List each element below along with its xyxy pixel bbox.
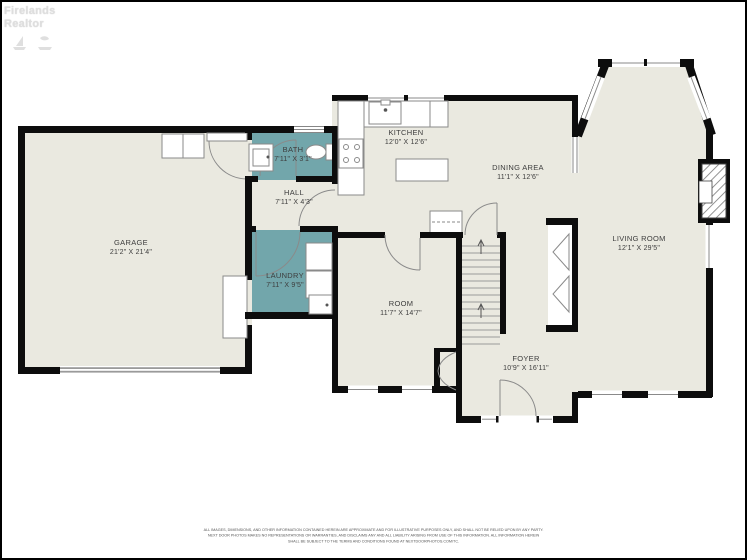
room-dims: 7'11" X 4'3" <box>275 198 313 208</box>
watermark: Firelands Realtor <box>4 5 56 56</box>
room-name: LAUNDRY <box>266 271 304 281</box>
kitchen-island <box>396 159 448 181</box>
watermark-line1: Firelands <box>4 5 56 18</box>
room-label-foyer: FOYER 10'9" X 16'11" <box>503 354 549 374</box>
room-label-garage: GARAGE 21'2" X 21'4" <box>110 238 152 258</box>
garage-appliance <box>183 134 204 158</box>
room-name: ROOM <box>380 299 422 309</box>
dryer <box>306 271 332 298</box>
room-dims: 7'11" X 3'1" <box>274 155 312 165</box>
room-name: LIVING ROOM <box>612 234 665 244</box>
garage-step <box>223 276 247 338</box>
east-window <box>706 225 713 268</box>
room-name: BATH <box>274 145 312 155</box>
room-name: DINING AREA <box>492 163 544 173</box>
utility-sink <box>309 295 332 314</box>
kitchen-sink <box>369 100 401 124</box>
room-name: GARAGE <box>110 238 152 248</box>
room-name: HALL <box>275 188 313 198</box>
fireplace <box>698 159 730 223</box>
refrigerator <box>430 211 462 234</box>
room-label-dining: DINING AREA 11'1" X 12'6" <box>492 163 544 183</box>
room-name: KITCHEN <box>385 128 427 138</box>
room-label-living: LIVING ROOM 12'1" X 29'5" <box>612 234 665 254</box>
stove <box>339 139 363 168</box>
room-dims: 11'7" X 14'7" <box>380 309 422 319</box>
sailboat-icon <box>10 34 56 52</box>
garage-appliance <box>162 134 183 158</box>
garage-door <box>60 366 220 374</box>
washer <box>306 243 332 270</box>
disclaimer: ALL IMAGES, DIMENSIONS, AND OTHER INFORM… <box>142 528 605 545</box>
cased-opening <box>572 137 579 173</box>
room-dims: 11'1" X 12'6" <box>492 173 544 183</box>
room-dims: 21'2" X 21'4" <box>110 248 152 258</box>
floorplan-page: Firelands Realtor <box>0 0 747 560</box>
room-label-hall: HALL 7'11" X 4'3" <box>275 188 313 208</box>
room-dims: 7'11" X 9'5" <box>266 281 304 291</box>
room-label-bath: BATH 7'11" X 3'1" <box>274 145 312 165</box>
room-dims: 12'0" X 12'6" <box>385 138 427 148</box>
disclaimer-line3: SHALL BE SUBJECT TO THE TERMS AND CONDIT… <box>142 539 605 545</box>
room-label-laundry: LAUNDRY 7'11" X 9'5" <box>266 271 304 291</box>
room-label-room: ROOM 11'7" X 14'7" <box>380 299 422 319</box>
room-dims: 12'1" X 29'5" <box>612 244 665 254</box>
floorplan-drawing <box>0 0 747 560</box>
bath-vanity <box>249 144 273 171</box>
room-dims: 10'9" X 16'11" <box>503 364 549 374</box>
room-name: FOYER <box>503 354 549 364</box>
watermark-line2: Realtor <box>4 18 56 31</box>
room-label-kitchen: KITCHEN 12'0" X 12'6" <box>385 128 427 148</box>
foyer-closet <box>546 218 578 332</box>
